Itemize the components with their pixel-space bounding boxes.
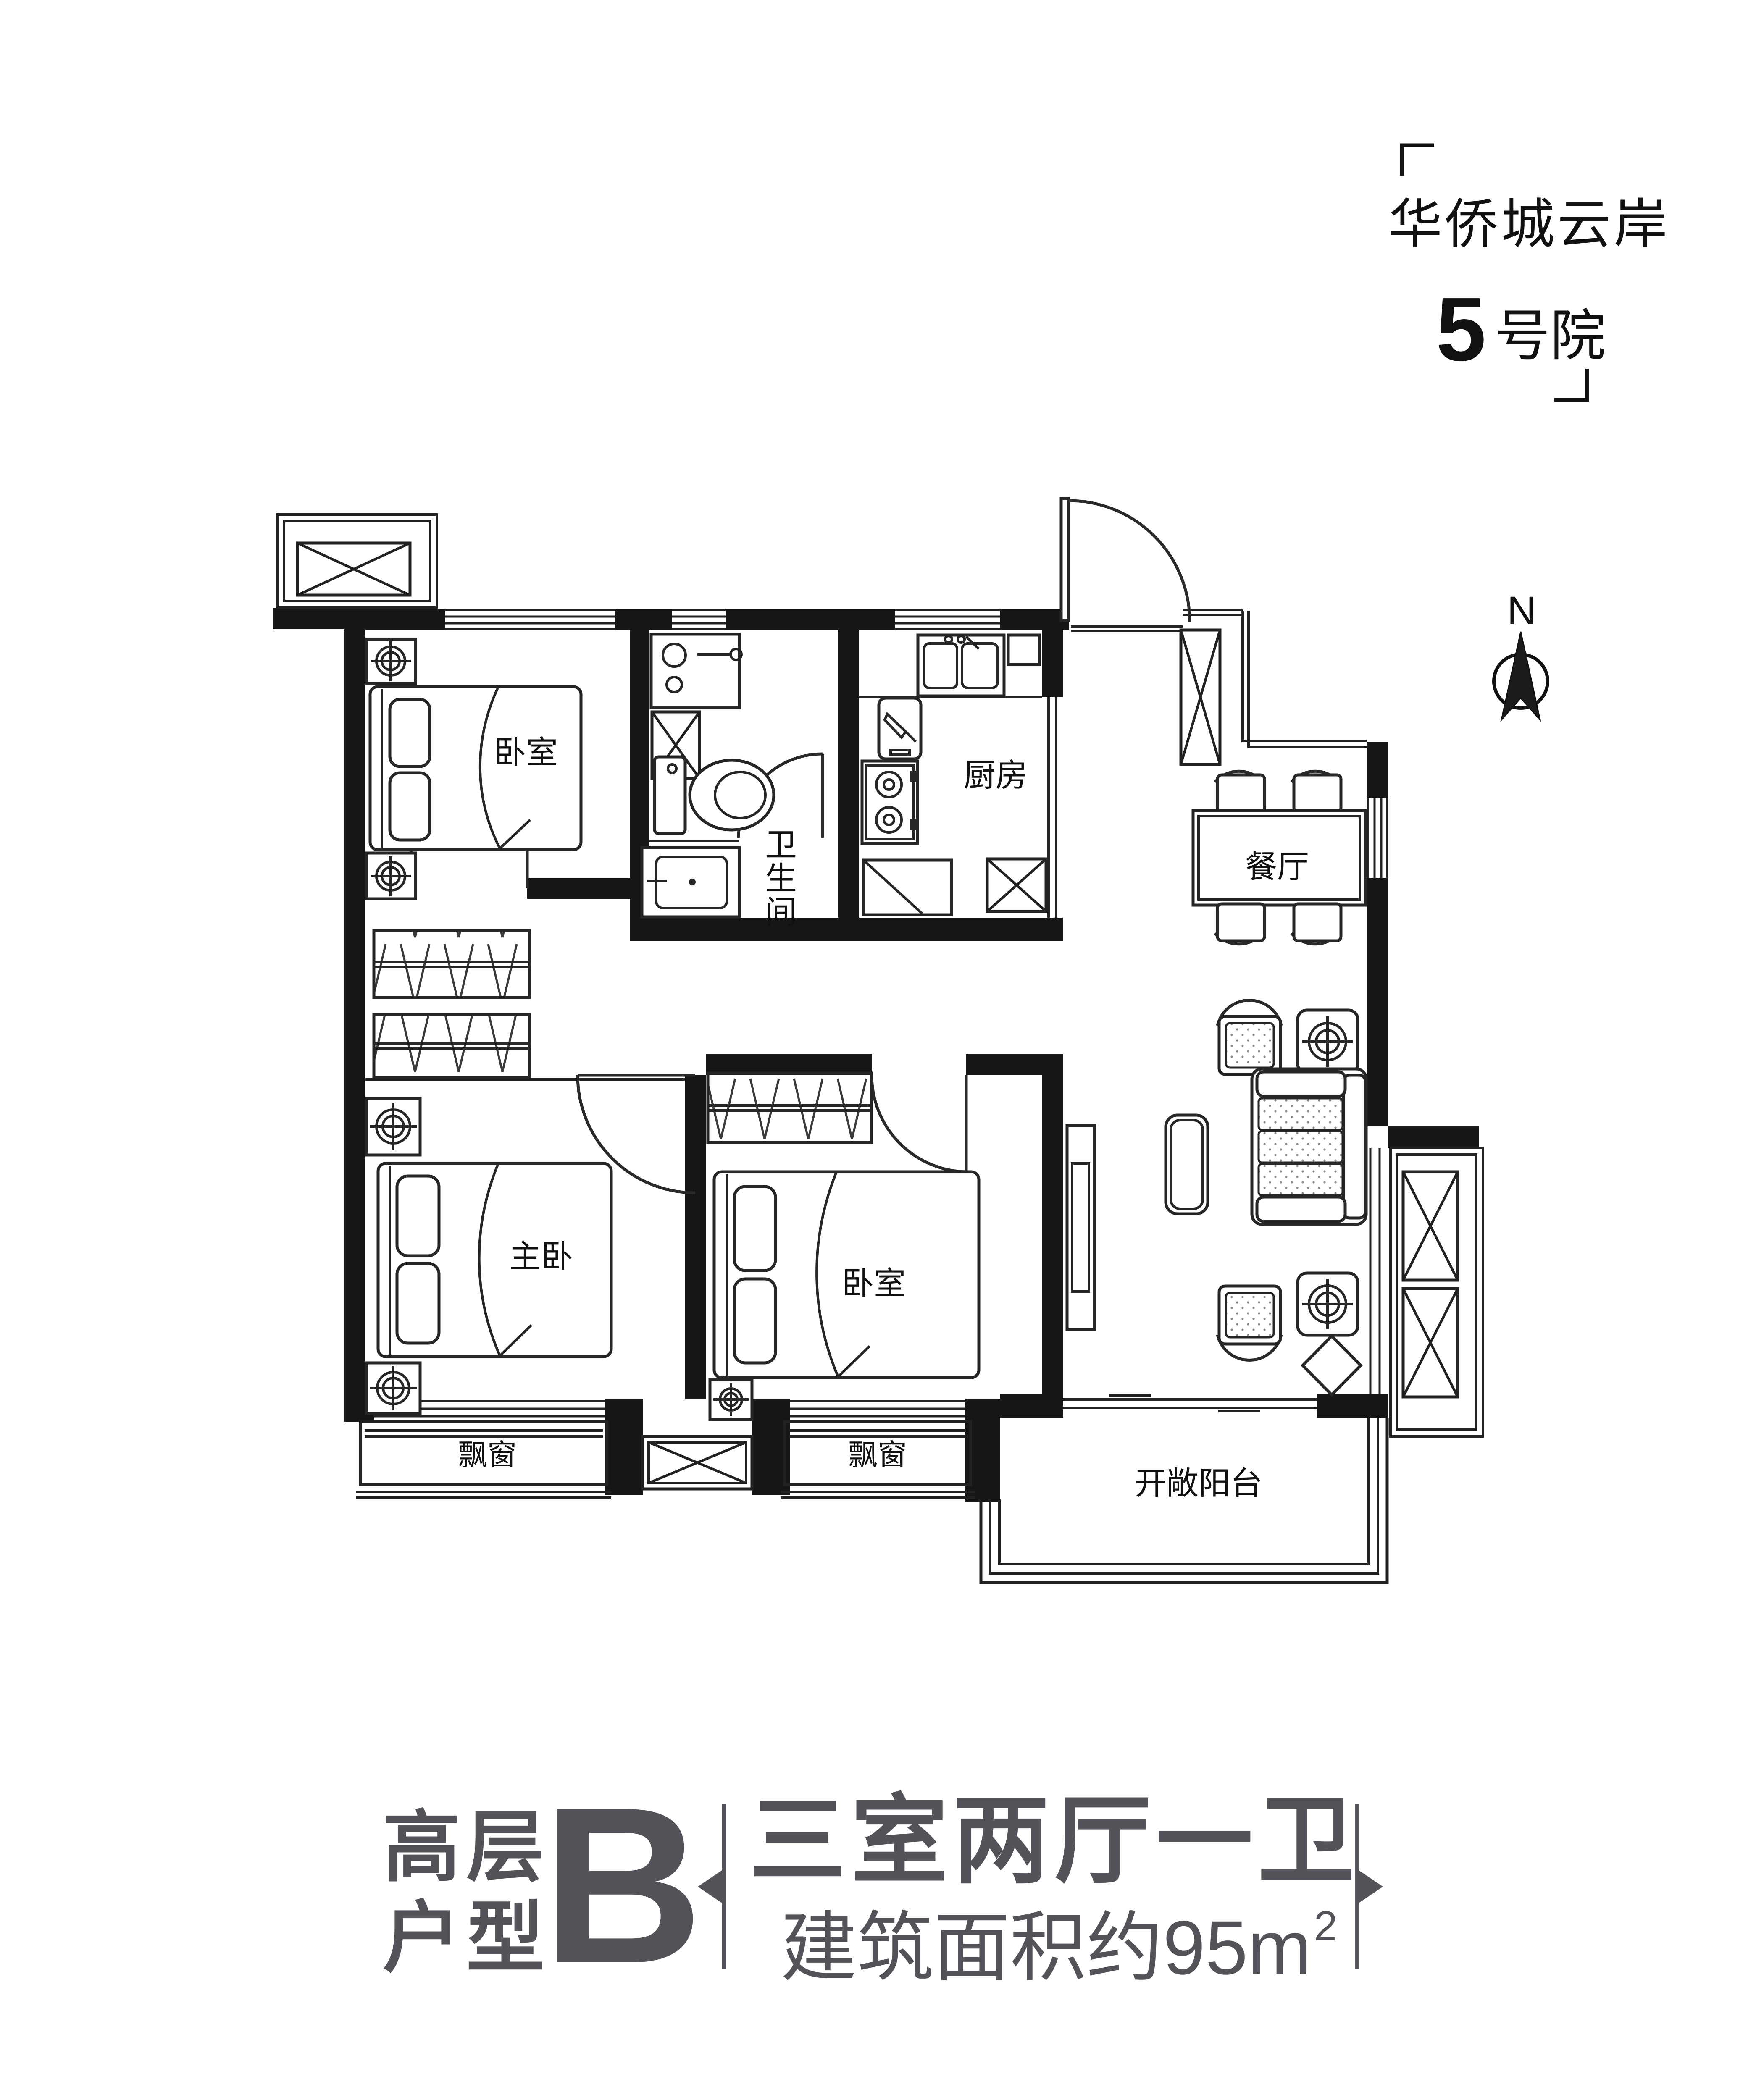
room-label-bathroom: 卫 生 间 xyxy=(765,827,797,930)
balcony: 开敞阳台 xyxy=(981,1395,1387,1583)
room-label-dining: 餐厅 xyxy=(1245,849,1309,885)
bathroom-fixtures: 卫 生 间 xyxy=(642,634,797,930)
bedroom-top-furniture: 卧室 xyxy=(366,639,581,899)
window-bay-right-glass xyxy=(790,1401,965,1416)
duct-between-bays xyxy=(643,1436,752,1489)
room-label-bay-right: 飘窗 xyxy=(848,1438,907,1471)
kitchen-counter-box xyxy=(1008,635,1040,664)
nightstand-lamp-icon xyxy=(366,1363,420,1413)
divider-diamond-right-icon xyxy=(1357,1869,1383,1904)
entry-door xyxy=(1061,499,1190,622)
corner-bracket-open-icon xyxy=(1402,145,1434,176)
bedroom-second-door xyxy=(872,1075,966,1172)
dining-chair-icon xyxy=(1291,904,1341,944)
wardrobe-icon xyxy=(374,930,529,997)
dining-furniture: 餐厅 xyxy=(1193,771,1365,944)
nightstand-lamp-icon xyxy=(366,639,415,683)
cutting-board-icon xyxy=(879,698,921,759)
floorplan-canvas: 华侨城云岸 5 号院 N xyxy=(0,0,1756,2100)
sofa-icon xyxy=(1252,1069,1366,1224)
duct-kitchen-corner xyxy=(987,859,1046,911)
dining-chair-icon xyxy=(1215,904,1264,944)
living-furniture xyxy=(1067,1000,1366,1395)
north-compass-icon: N xyxy=(1494,588,1548,720)
bay-window-left: 飘窗 xyxy=(356,1422,611,1498)
court-suffix: 号院 xyxy=(1495,305,1606,367)
kitchen-sink-icon xyxy=(918,635,1004,696)
entry-duct-shaft xyxy=(1181,630,1220,764)
vanity-sink-icon xyxy=(642,848,739,917)
footer-area-text: 建筑面积约95m xyxy=(781,1905,1312,1990)
window-dining-east xyxy=(1368,798,1387,878)
ac-platform-right xyxy=(1391,1148,1483,1436)
room-label-kitchen: 厨房 xyxy=(964,758,1028,793)
armchair-icon xyxy=(1217,1000,1281,1074)
kitchen-fixtures: 厨房 xyxy=(859,635,1042,915)
kitchen-sliding-door xyxy=(1049,697,1056,918)
footer-title-block: 高层 户型 B 三室两厅一卫 建筑面积约95m2 xyxy=(383,1761,1383,2010)
stove-icon xyxy=(862,761,917,843)
footer-category-line2: 户型 xyxy=(383,1895,550,1982)
bed-icon xyxy=(378,1163,611,1357)
window-living-east-glass xyxy=(1370,1148,1380,1394)
project-name: 华侨城云岸 xyxy=(1388,194,1670,255)
dining-chair-icon xyxy=(1291,771,1341,812)
dining-chair-icon xyxy=(1215,771,1264,812)
room-label-bedroom-top: 卧室 xyxy=(494,735,558,771)
window-bathroom xyxy=(672,610,726,629)
fridge-icon xyxy=(863,860,952,915)
room-label-bedroom-second: 卧室 xyxy=(842,1266,906,1302)
tv-cabinet-icon xyxy=(1067,1126,1094,1329)
side-table-lamp-icon xyxy=(1298,1273,1358,1335)
nightstand-lamp-icon xyxy=(710,1380,752,1420)
compass-north-label: N xyxy=(1507,588,1536,633)
bedroom-second-furniture: 卧室 xyxy=(708,1073,979,1420)
footer-category-line1: 高层 xyxy=(383,1804,550,1891)
wardrobe-icon xyxy=(708,1073,872,1142)
room-label-bathroom-char2: 生 xyxy=(765,861,797,897)
footer-area-exponent: 2 xyxy=(1314,1903,1338,1950)
divider-right xyxy=(1357,1804,1383,1969)
window-kitchen xyxy=(895,610,1000,629)
ac-platform-top-left xyxy=(277,514,437,608)
court-number: 5 xyxy=(1436,278,1486,380)
nightstand-lamp-icon xyxy=(366,1098,420,1155)
header-block: 华侨城云岸 5 号院 xyxy=(1388,145,1670,400)
decor-plant-icon xyxy=(1303,1336,1361,1395)
room-label-bay-left: 飘窗 xyxy=(458,1438,517,1471)
coffee-table-icon xyxy=(1166,1115,1208,1214)
side-table-lamp-icon xyxy=(1298,1010,1358,1073)
nightstand-lamp-icon xyxy=(366,853,415,899)
toilet-icon xyxy=(655,757,774,834)
room-label-bathroom-char3: 间 xyxy=(765,895,797,930)
armchair-icon xyxy=(1217,1286,1281,1360)
footer-area-line: 建筑面积约95m2 xyxy=(781,1903,1338,1990)
washing-machine-icon xyxy=(651,634,741,708)
bay-window-right: 飘窗 xyxy=(781,1422,975,1498)
footer-unit-letter: B xyxy=(542,1761,703,2010)
window-bedroom-top xyxy=(445,610,615,629)
room-label-master-bedroom: 主卧 xyxy=(509,1239,573,1275)
master-bedroom-furniture: 主卧 xyxy=(365,930,685,1413)
footer-spec-title: 三室两厅一卫 xyxy=(749,1787,1359,1895)
wardrobe-icon xyxy=(374,1014,529,1077)
room-label-balcony: 开敞阳台 xyxy=(1135,1466,1262,1501)
corner-bracket-close-icon xyxy=(1554,369,1587,400)
entry-and-thin-walls xyxy=(1061,499,1367,764)
room-label-bathroom-char1: 卫 xyxy=(765,827,797,863)
